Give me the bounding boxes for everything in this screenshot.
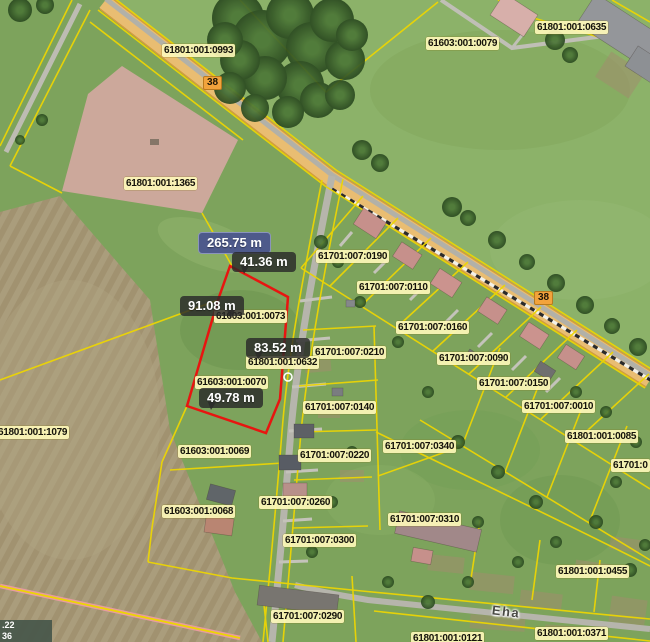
cadastral-label: 61603:001:0079 bbox=[426, 37, 499, 50]
cadastral-label: 61701:007:0340 bbox=[383, 440, 456, 453]
cadastral-label: 61801:001:0455 bbox=[556, 565, 629, 578]
cadastral-label: 61701:007:0160 bbox=[396, 321, 469, 334]
cadastral-label: 61701:007:0220 bbox=[298, 449, 371, 462]
cadastral-label: 61801:001:1079 bbox=[0, 426, 69, 439]
cadastral-label: 61701:007:0210 bbox=[313, 346, 386, 359]
cadastral-label: 61701:007:0310 bbox=[388, 513, 461, 526]
measurement-total-badge: 265.75 m bbox=[198, 232, 271, 254]
cadastral-label: 61701:007:0140 bbox=[303, 401, 376, 414]
coordinate-line: .22 bbox=[2, 620, 50, 631]
cadastral-label: 61801:001:0993 bbox=[162, 44, 235, 57]
cadastral-label: 61801:001:0085 bbox=[565, 430, 638, 443]
measurement-segment-badge: 49.78 m bbox=[199, 388, 263, 408]
cadastral-label: 61701:007:0290 bbox=[271, 610, 344, 623]
measurement-segment-badge: 83.52 m bbox=[246, 338, 310, 358]
coordinate-readout: .22 36 bbox=[0, 620, 52, 642]
cadastral-label: 61701:007:0190 bbox=[316, 250, 389, 263]
cadastral-label: 61701:0 bbox=[611, 459, 650, 472]
cadastral-label: 61801:001:0371 bbox=[535, 627, 608, 640]
cadastral-label: 61701:007:0300 bbox=[283, 534, 356, 547]
map-viewport[interactable]: 61801:001:0993 61603:001:0079 61801:001:… bbox=[0, 0, 650, 642]
cadastral-label: 61701:007:0260 bbox=[259, 496, 332, 509]
road-number-badge: 38 bbox=[534, 291, 553, 305]
measurement-segment-badge: 91.08 m bbox=[180, 296, 244, 316]
cadastral-label: 61603:001:0068 bbox=[162, 505, 235, 518]
cadastral-label: 61801:001:0635 bbox=[535, 21, 608, 34]
cadastral-label: 61701:007:0090 bbox=[437, 352, 510, 365]
cadastral-label: 61801:001:1365 bbox=[124, 177, 197, 190]
cadastral-label: 61701:007:0010 bbox=[522, 400, 595, 413]
coordinate-line: 36 bbox=[2, 631, 50, 642]
measurement-segment-badge: 41.36 m bbox=[232, 252, 296, 272]
cadastral-label: 61801:001:0121 bbox=[411, 632, 484, 642]
cadastral-label: 61701:007:0110 bbox=[357, 281, 430, 294]
cadastral-label: 61701:007:0150 bbox=[477, 377, 550, 390]
road-number-badge: 38 bbox=[203, 76, 222, 90]
cadastral-label: 61603:001:0069 bbox=[178, 445, 251, 458]
